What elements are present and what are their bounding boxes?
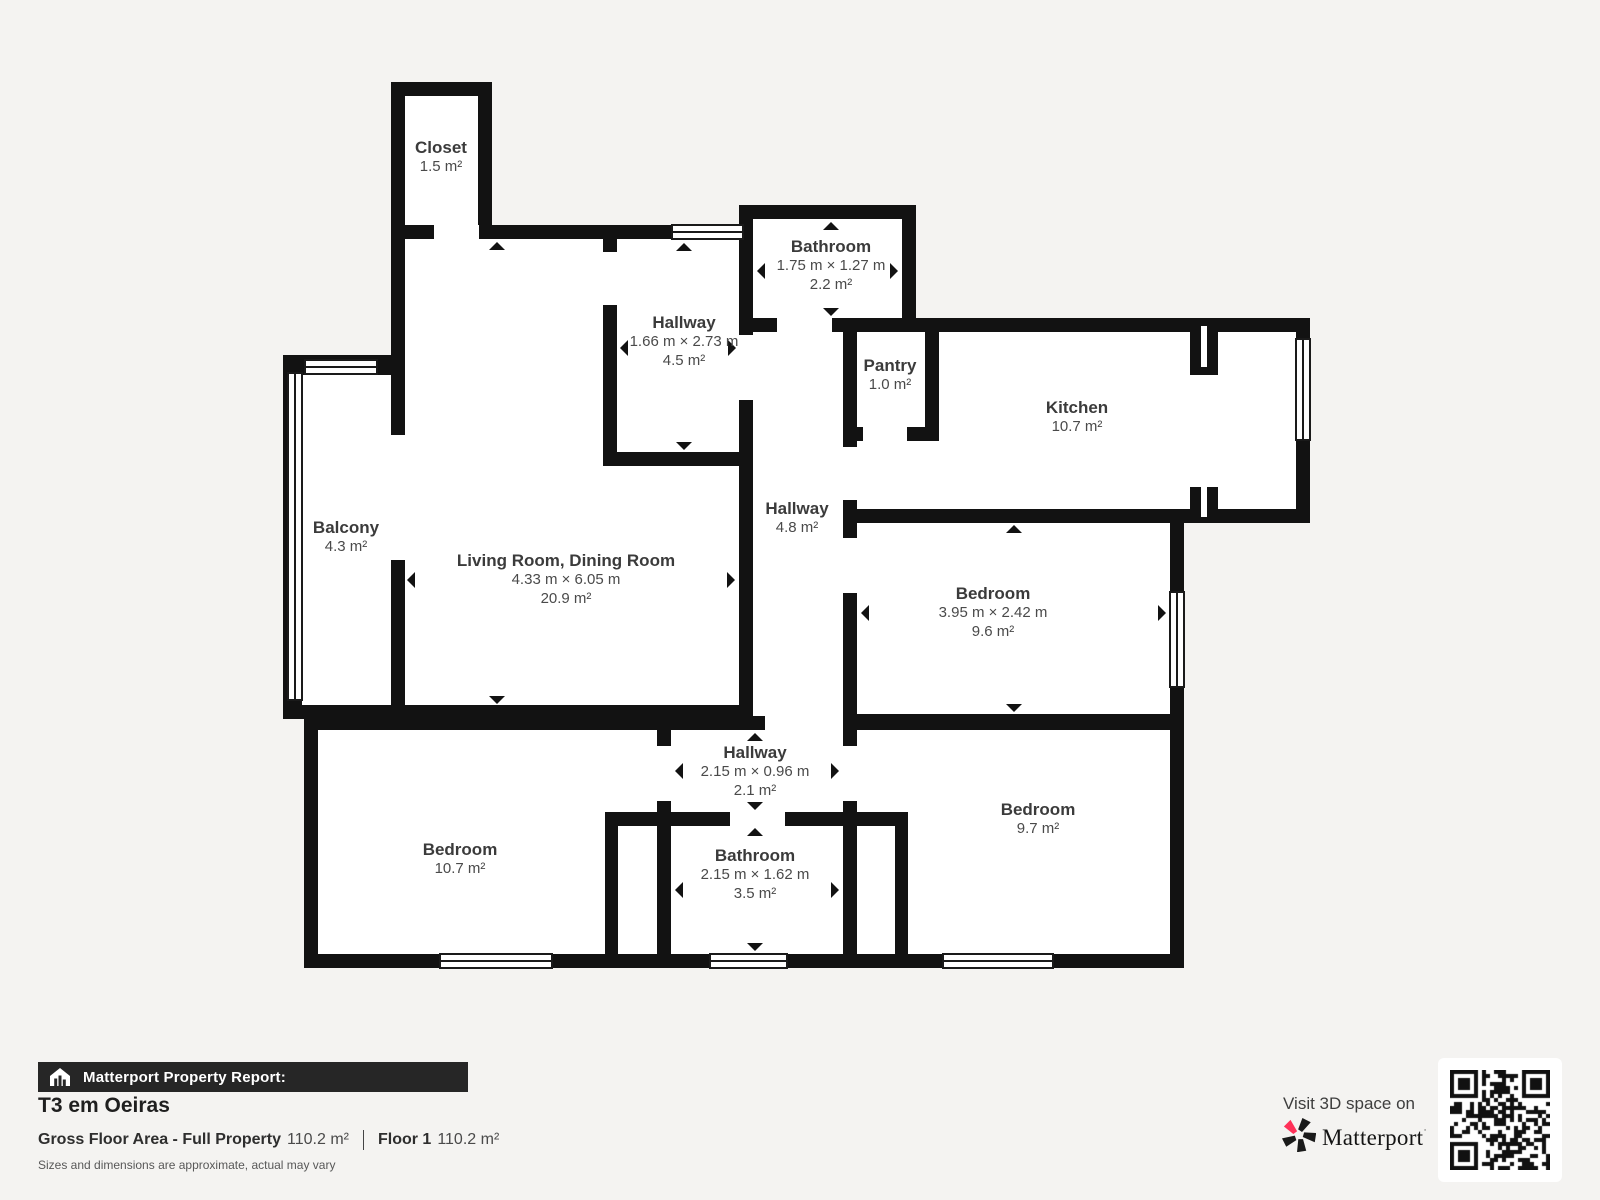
room-label-hallway-top: Hallway 1.66 m × 2.73 m 4.5 m² (630, 313, 739, 370)
room-bedroom-bottom-right-floor (908, 730, 1170, 954)
floor-plan (0, 0, 1600, 1200)
room-kitchen-floor (1190, 375, 1218, 487)
gross-floor-area-value: 110.2 m² (287, 1131, 349, 1149)
room-label-hallway-mid: Hallway 4.8 m² (765, 499, 828, 537)
room-label-bathroom-top: Bathroom 1.75 m × 1.27 m 2.2 m² (777, 237, 886, 294)
room-label-bedroom-left: Bedroom 10.7 m² (423, 840, 498, 878)
room-label-hallway-bottom: Hallway 2.15 m × 0.96 m 2.1 m² (701, 743, 810, 800)
room-label-kitchen: Kitchen 10.7 m² (1046, 398, 1108, 436)
room-label-bedroom-bottom-right: Bedroom 9.7 m² (1001, 800, 1076, 838)
room-label-pantry: Pantry 1.0 m² (864, 356, 917, 394)
house-report-icon (49, 1067, 71, 1087)
property-report-page: Closet 1.5 m² Bathroom 1.75 m × 1.27 m 2… (0, 0, 1600, 1200)
door-hallway-top-left (603, 252, 617, 305)
shaft-right-floor (857, 826, 895, 954)
window-balcony-left (288, 373, 302, 700)
room-label-balcony: Balcony 4.3 m² (313, 518, 379, 556)
door-hallway-top-right (739, 335, 753, 400)
qr-code (1450, 1070, 1550, 1170)
area-summary: Gross Floor Area - Full Property 110.2 m… (38, 1130, 499, 1150)
matterport-brand: Matterport˙ (1282, 1118, 1427, 1157)
door-balcony (391, 435, 405, 560)
disclaimer-text: Sizes and dimensions are approximate, ac… (38, 1158, 335, 1172)
window-bedroom-right (1170, 592, 1184, 687)
room-kitchen-floor (1218, 332, 1296, 509)
report-bar-label: Matterport Property Report: (83, 1069, 286, 1086)
qr-code-card (1438, 1058, 1562, 1182)
floor-label: Floor 1 (378, 1131, 431, 1149)
window-balcony-top (305, 360, 377, 374)
door-pantry (863, 427, 907, 441)
door-bedroom-bottom-right (843, 746, 857, 801)
page-title: T3 em Oeiras (38, 1094, 170, 1118)
door-closet (434, 225, 479, 239)
door-bathroom-top (777, 318, 832, 332)
room-label-bathroom-bottom: Bathroom 2.15 m × 1.62 m 3.5 m² (701, 846, 810, 903)
report-header-bar: Matterport Property Report: (38, 1062, 468, 1092)
room-bedroom-bottom-right-floor (857, 730, 908, 812)
room-label-bedroom-right: Bedroom 3.95 m × 2.42 m 9.6 m² (939, 584, 1048, 641)
matterport-logo-icon (1282, 1118, 1316, 1157)
window-hallway-top (672, 225, 743, 239)
room-kitchen-floor (857, 441, 939, 509)
door-kitchen (843, 447, 857, 500)
room-label-closet: Closet 1.5 m² (415, 138, 467, 176)
wall-slit-kitchen-bottom (1201, 478, 1207, 517)
room-label-living: Living Room, Dining Room 4.33 m × 6.05 m… (457, 551, 675, 608)
window-bedroom-bottom-right (943, 954, 1053, 968)
window-bathroom-bottom (710, 954, 787, 968)
divider (363, 1130, 364, 1150)
wall-slit-kitchen-top (1201, 326, 1207, 367)
door-bathroom-bottom (730, 812, 785, 826)
matterport-wordmark: Matterport˙ (1322, 1125, 1427, 1151)
door-bedroom-right (843, 538, 857, 593)
visit-3d-text: Visit 3D space on (1283, 1094, 1415, 1114)
floor-value: 110.2 m² (437, 1131, 499, 1149)
window-bedroom-left (440, 954, 552, 968)
window-kitchen (1296, 339, 1310, 440)
door-hallway-bottom-top (765, 716, 843, 730)
gross-floor-area-label: Gross Floor Area - Full Property (38, 1131, 281, 1149)
shaft-left-floor (618, 826, 657, 954)
room-living-floor (405, 239, 739, 705)
room-bedroom-left-floor (605, 730, 657, 812)
door-bedroom-left (657, 746, 671, 801)
